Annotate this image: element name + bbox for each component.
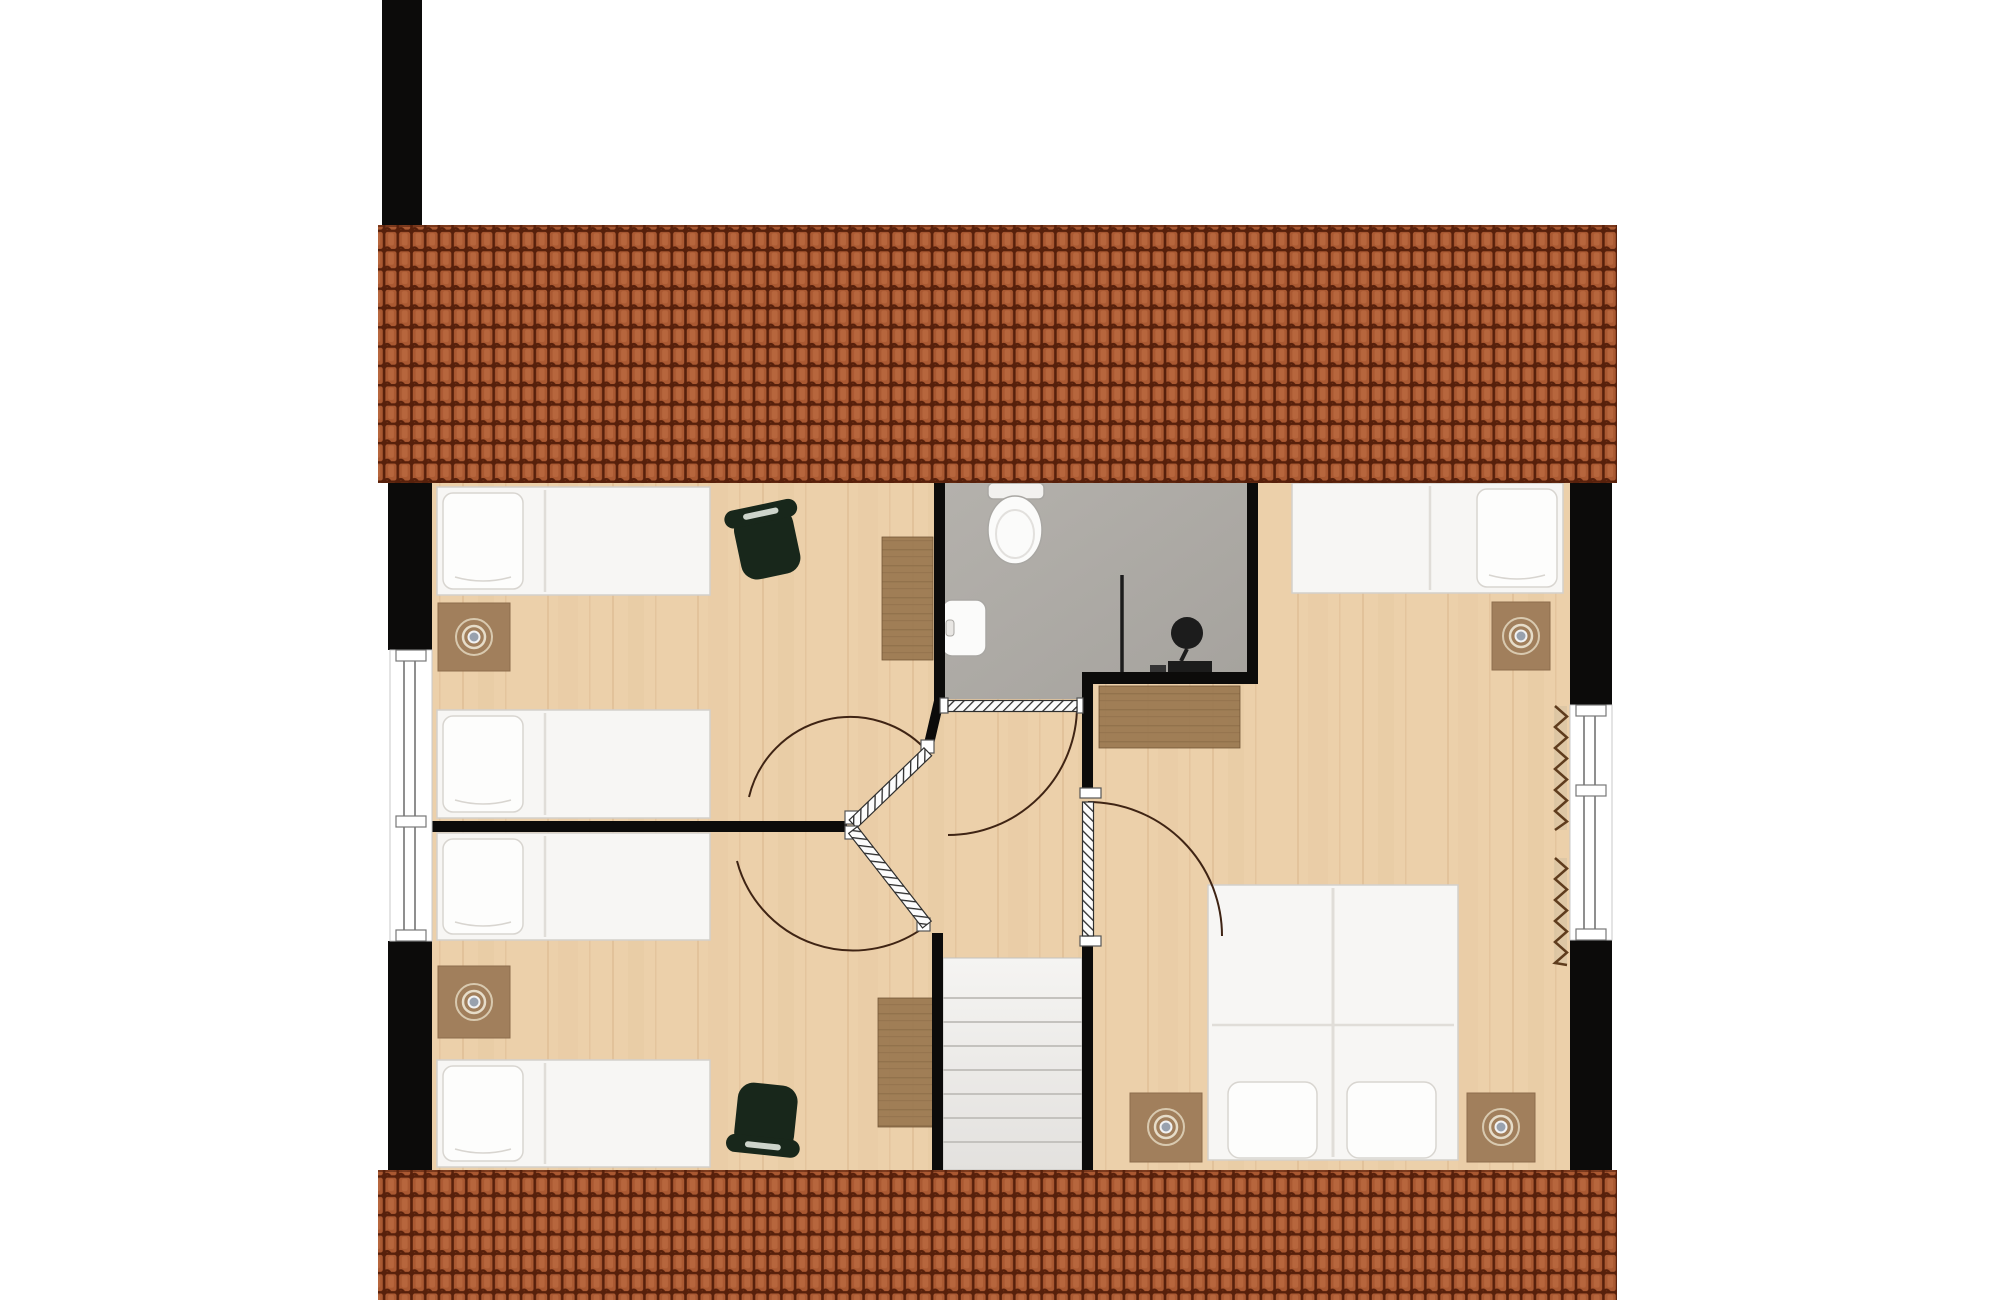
dresser <box>1099 686 1240 748</box>
window-sash-divider <box>396 930 426 941</box>
pillow <box>443 1066 523 1161</box>
wall-right-upper <box>1570 483 1612 705</box>
shower-accessory <box>1150 665 1166 673</box>
radiator-right-lower <box>1554 858 1567 965</box>
lamp-icon <box>469 997 480 1008</box>
roof-tiles <box>378 1170 1617 1300</box>
single-bed-4 <box>437 1060 710 1167</box>
lamp-icon <box>1516 631 1527 642</box>
single-bed-3 <box>437 833 710 940</box>
door-jamb <box>1080 788 1101 798</box>
wall-bathroom-bottom-right <box>1093 672 1258 684</box>
window-sash-divider <box>1576 785 1606 796</box>
door-jamb <box>1080 936 1101 946</box>
toilet <box>988 483 1044 564</box>
wall-bathroom-right <box>1247 483 1258 684</box>
window-sash-divider <box>1576 705 1606 716</box>
lamp-icon <box>1496 1122 1507 1133</box>
single-bed-5 <box>1292 483 1563 593</box>
wall-bathroom-left <box>934 483 945 699</box>
nightstand-rug-5 <box>1467 1093 1535 1162</box>
door-leaf-group <box>1083 802 1094 936</box>
roof-top <box>378 225 1617 483</box>
wall-left-upper <box>388 483 432 650</box>
pillow <box>1228 1082 1317 1158</box>
window-opening <box>390 650 432 941</box>
shower-head <box>1171 617 1203 649</box>
pillow <box>1347 1082 1436 1158</box>
wall-bedroom-right-upper <box>1082 672 1093 790</box>
window-sash-divider <box>396 816 426 827</box>
wall-left-lower <box>388 941 432 1170</box>
door-leaf <box>948 701 1077 712</box>
shower-base <box>1168 661 1212 673</box>
single-bed-1 <box>437 487 710 595</box>
chimney <box>382 0 422 225</box>
window-opening <box>1570 705 1612 940</box>
window-right <box>1570 705 1612 940</box>
window-left <box>390 650 432 941</box>
roof-bottom <box>378 1170 1617 1300</box>
window-sash-divider <box>1576 929 1606 940</box>
staircase-graphic <box>943 958 1082 1170</box>
pillow <box>443 716 523 812</box>
door-jamb <box>1077 698 1083 713</box>
desk-bedroom-left-bottom <box>878 998 933 1127</box>
wall-divider-left-rooms <box>432 821 847 832</box>
door-leaf-group <box>948 701 1077 712</box>
door-jamb <box>940 698 948 713</box>
radiator-right-upper <box>1554 706 1567 830</box>
pillow <box>1477 489 1557 587</box>
single-bed-2 <box>437 710 710 818</box>
nightstand-rug-1 <box>438 603 510 671</box>
double-bed <box>1208 885 1458 1160</box>
desk-bedroom-left-top <box>882 537 933 660</box>
door-leaf <box>1083 802 1094 936</box>
nightstand-rug-3 <box>1492 602 1550 670</box>
basin-tap <box>946 620 954 636</box>
lamp-icon <box>469 632 480 643</box>
floor-plan-page <box>0 0 2000 1300</box>
roof-tiles <box>378 225 1617 483</box>
pillow <box>443 839 523 934</box>
wall-bedroom-right-lower <box>1082 946 1093 1170</box>
pillow <box>443 493 523 589</box>
nightstand-rug-2 <box>438 966 510 1038</box>
floor-plan-svg <box>0 0 2000 1300</box>
wall-right-lower <box>1570 940 1612 1170</box>
nightstand-rug-4 <box>1130 1093 1202 1162</box>
wall-staircase-left <box>932 933 943 1170</box>
lamp-icon <box>1161 1122 1172 1133</box>
washbasin <box>942 600 986 656</box>
stair-landing <box>943 958 1082 1170</box>
window-sash-divider <box>396 650 426 661</box>
